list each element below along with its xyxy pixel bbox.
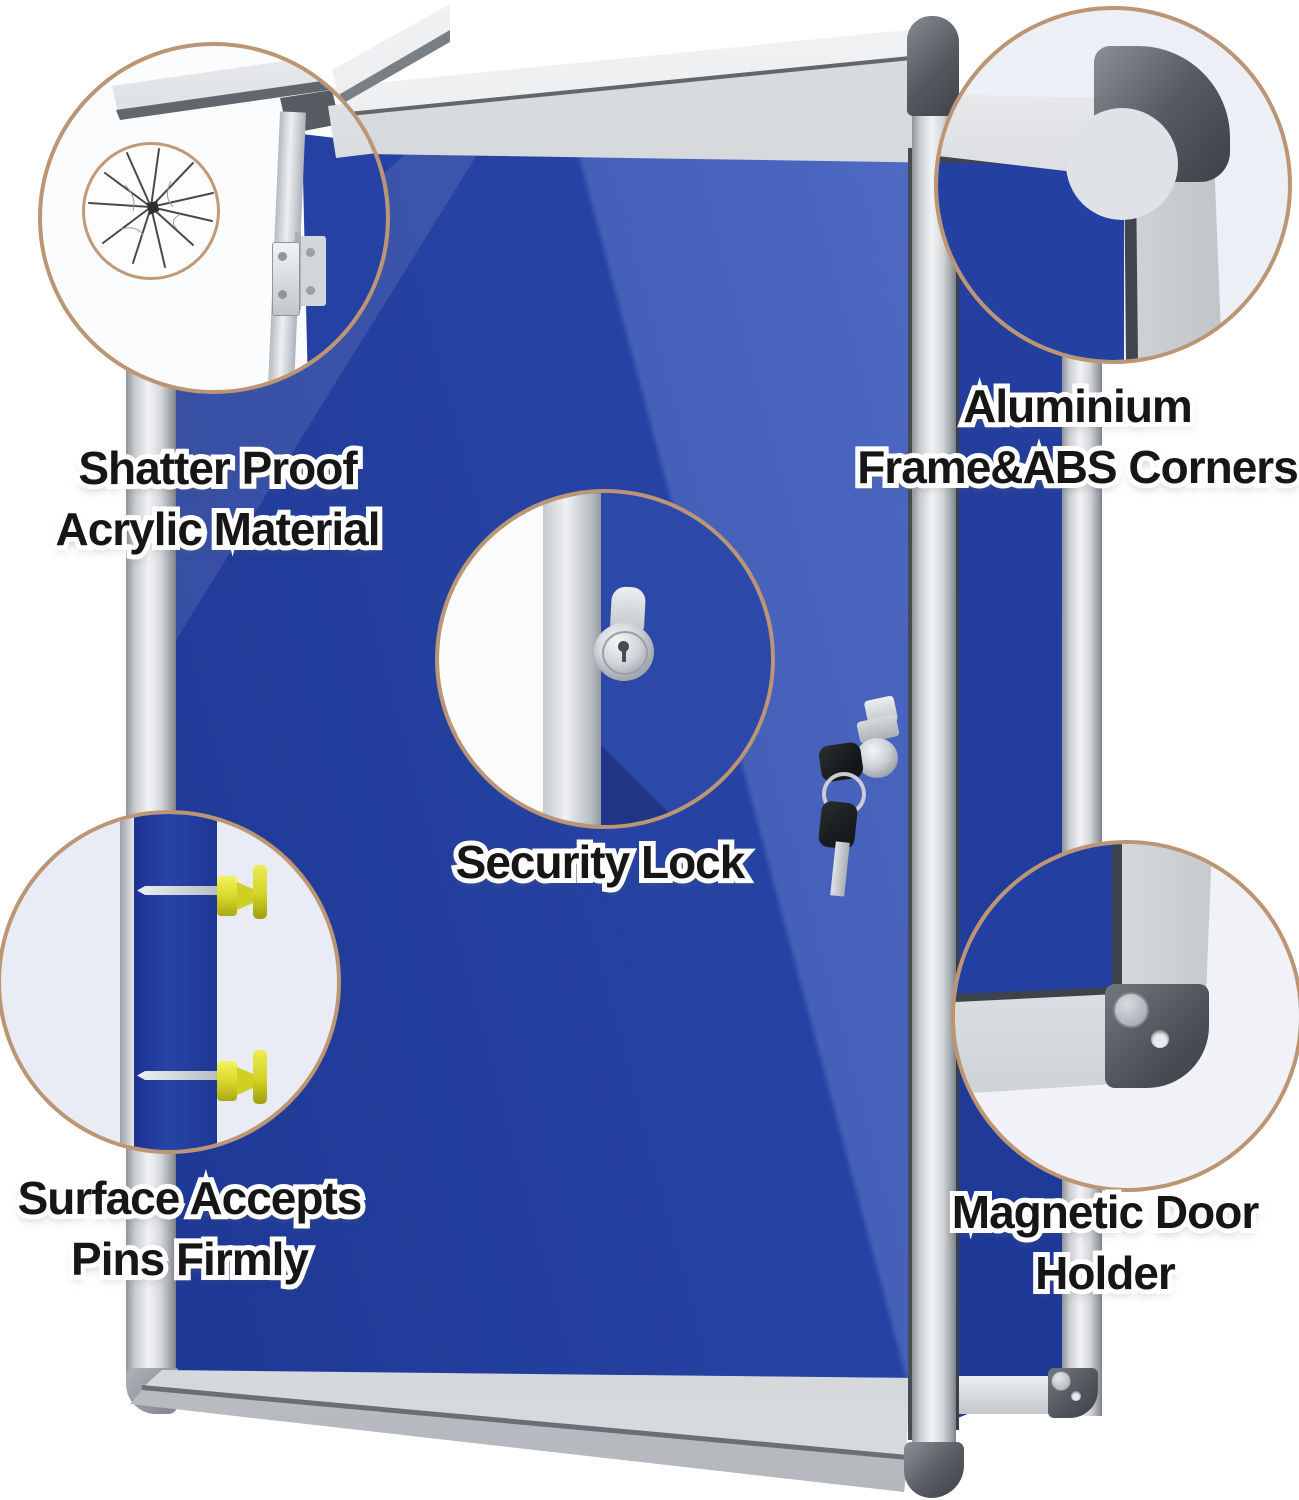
gap-vertical (1112, 844, 1122, 996)
pushpin-needle (137, 1071, 217, 1080)
lock-keyhole-disc[interactable] (594, 623, 654, 681)
inset-magnetic-holder (951, 840, 1299, 1192)
abs-corner-inner-curve (1066, 108, 1178, 220)
felt-cross-section (134, 814, 217, 1150)
product-feature-image: Shatter ProofShatter Proof Acrylic Mater… (0, 0, 1299, 1500)
inset-security-lock (435, 489, 775, 829)
inset-frame-corner (934, 6, 1292, 364)
magnet-disc (1113, 992, 1149, 1028)
door-edge-strip-in-inset (543, 493, 601, 825)
label-shatter-proof: Shatter ProofShatter Proof Acrylic Mater… (20, 438, 415, 560)
hinge-plate-back (298, 236, 326, 306)
magnetic-corner-bracket (1105, 984, 1209, 1088)
magnet-disc (1051, 1371, 1071, 1391)
label-security-lock: Security LockSecurity Lock (420, 832, 780, 893)
bracket-screw-hole (1151, 1030, 1169, 1048)
keyhole-slot (622, 649, 626, 662)
inset-shatterproof-acrylic (38, 42, 390, 394)
pushpin-flange (253, 865, 267, 919)
label-surface-pins: Surface AcceptsSurface Accepts Pins Firm… (0, 1168, 387, 1290)
shattered-glass-inset (82, 142, 220, 280)
hinge-screw (278, 252, 287, 261)
bracket-screw-hole (1071, 1391, 1081, 1401)
hinge-screw (278, 290, 287, 299)
inset-pin-surface (0, 810, 341, 1154)
felt-edge-sliver (120, 814, 134, 1150)
pushpin-head-base (217, 1061, 237, 1101)
door-corner-cap-bottom-right (904, 1442, 964, 1498)
door-white-face-in-inset (439, 493, 544, 825)
label-magnetic-holder: Magnetic DoorMagnetic Door HolderHolder (910, 1182, 1299, 1304)
label-aluminium-frame: AluminiumAluminium Frame&ABS CornersFram… (855, 376, 1299, 498)
hinge-screw (306, 286, 315, 295)
hinge-screw (306, 248, 315, 257)
pushpin-flange (253, 1050, 267, 1104)
abs-corner-cap (1094, 46, 1230, 182)
pushpin-needle (137, 886, 217, 895)
crack-icon (85, 145, 217, 277)
pushpin-head-base (217, 876, 237, 916)
